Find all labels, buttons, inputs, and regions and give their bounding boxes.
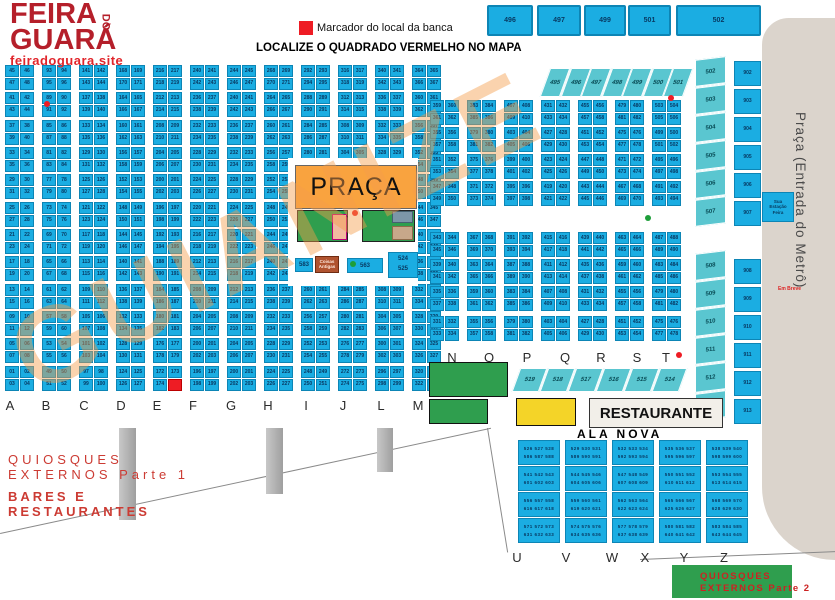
stall-cell: 16 bbox=[20, 297, 34, 309]
stall-cell: 248 bbox=[301, 366, 315, 378]
stall-cell: 395 bbox=[504, 181, 518, 193]
stall-cell: 101 bbox=[79, 338, 93, 350]
stall-cell: 354 bbox=[445, 167, 459, 179]
stall-cell: 449 bbox=[578, 167, 592, 179]
stall-cell: 459 bbox=[615, 259, 629, 271]
stall-cell: 317 bbox=[353, 65, 367, 77]
stall-cell: 502 bbox=[667, 140, 681, 152]
stall-cell: 470 bbox=[630, 194, 644, 206]
stall-cell: 40 bbox=[20, 133, 34, 145]
stall-cell: 131 bbox=[79, 160, 93, 172]
stall-cell: 226 bbox=[190, 187, 204, 199]
stall-cell: 366 bbox=[412, 78, 426, 90]
stall-cell-908: 908 bbox=[734, 259, 761, 284]
stall-cell: 431 bbox=[578, 286, 592, 298]
ala-nova-numbers: 613 614 615 bbox=[712, 479, 743, 486]
stall-cell: 296 bbox=[375, 366, 389, 378]
stall-cell: 249 bbox=[316, 366, 330, 378]
stall-cell: 364 bbox=[412, 65, 426, 77]
stall-cell-510: 510 bbox=[695, 306, 726, 337]
stall-cell: 343 bbox=[430, 232, 444, 244]
stall-cell: 400 bbox=[519, 154, 533, 166]
stall-cell: 96 bbox=[57, 78, 71, 90]
stall-cell: 205 bbox=[242, 338, 256, 350]
stall-cell: 451 bbox=[578, 127, 592, 139]
stall-cell: 113 bbox=[79, 256, 93, 268]
stall-cell: 291 bbox=[316, 105, 330, 117]
stall-cell: 306 bbox=[375, 324, 389, 336]
stall-cell: 167 bbox=[131, 105, 145, 117]
stall-cell: 475 bbox=[615, 127, 629, 139]
stall-cell: 498 bbox=[667, 167, 681, 179]
stall-cell: 124 bbox=[116, 366, 130, 378]
stall-cell: 236 bbox=[190, 92, 204, 104]
ala-nova-numbers: 625 626 627 bbox=[665, 505, 696, 512]
stall-cell: 144 bbox=[94, 78, 108, 90]
stall-cell: 259 bbox=[316, 324, 330, 336]
stall-cell: 504 bbox=[667, 100, 681, 112]
stall-cell: 103 bbox=[79, 351, 93, 363]
stall-cell: 453 bbox=[578, 140, 592, 152]
stall-cell: 452 bbox=[593, 127, 607, 139]
stall-cell: 315 bbox=[353, 105, 367, 117]
stall-cell: 276 bbox=[338, 338, 352, 350]
ala-nova-numbers: 631 632 633 bbox=[524, 531, 555, 538]
stall-cell: 333 bbox=[430, 329, 444, 341]
stall-cell: 205 bbox=[205, 311, 219, 323]
column-letter-J: J bbox=[340, 398, 347, 413]
stall-cell: 213 bbox=[168, 92, 182, 104]
quiosques1-line1: QUIOSQUES bbox=[8, 452, 123, 467]
stall-cell: 353 bbox=[430, 167, 444, 179]
stall-cell: 177 bbox=[168, 338, 182, 350]
stall-cell: 332 bbox=[375, 120, 389, 132]
stall-cell: 218 bbox=[190, 242, 204, 254]
stall-cell-504: 504 bbox=[695, 112, 726, 143]
ala-nova-block: 556 557 558616 617 618 bbox=[518, 492, 560, 517]
stall-cell: 374 bbox=[482, 194, 496, 206]
stall-cell: 239 bbox=[242, 133, 256, 145]
stall-cell: 367 bbox=[427, 78, 441, 90]
stall-cell: 36 bbox=[20, 160, 34, 172]
stall-cell: 262 bbox=[264, 133, 278, 145]
stall-cell: 359 bbox=[430, 100, 444, 112]
stall-cell: 03 bbox=[5, 379, 19, 391]
stall-cell-508: 508 bbox=[695, 250, 726, 281]
stall-cell: 447 bbox=[578, 154, 592, 166]
ala-nova-numbers: 565 566 567 bbox=[665, 497, 696, 504]
stall-cell: 265 bbox=[279, 92, 293, 104]
stall-cell: 38 bbox=[20, 120, 34, 132]
stall-cell: 366 bbox=[482, 272, 496, 284]
stall-cell: 433 bbox=[578, 299, 592, 311]
ala-nova-numbers: 592 593 594 bbox=[618, 453, 649, 460]
stall-cell: 125 bbox=[131, 366, 145, 378]
ala-nova-block: 544 545 546604 605 606 bbox=[565, 466, 607, 491]
stall-cell: 490 bbox=[667, 245, 681, 257]
stall-cell: 407 bbox=[504, 100, 518, 112]
logo-do: DO bbox=[99, 14, 111, 31]
ala-nova-numbers: 616 617 618 bbox=[524, 505, 555, 512]
stall-cell: 429 bbox=[541, 140, 555, 152]
stall-cell: 337 bbox=[390, 92, 404, 104]
stall-cell: 130 bbox=[116, 351, 130, 363]
ala-nova-block: 535 536 537595 596 597 bbox=[659, 440, 701, 465]
stall-cell: 124 bbox=[94, 215, 108, 227]
stall-cell: 143 bbox=[79, 78, 93, 90]
stall-cell: 51 bbox=[42, 379, 56, 391]
ala-nova-block: 553 554 555613 614 615 bbox=[706, 466, 748, 491]
ala-nova-numbers: 619 620 621 bbox=[571, 505, 602, 512]
stall-cell: 62 bbox=[57, 284, 71, 296]
stall-cell: 282 bbox=[338, 324, 352, 336]
site-link[interactable]: feiradoguara.site bbox=[10, 53, 123, 68]
stall-cell: 485 bbox=[652, 272, 666, 284]
stall-cell: 141 bbox=[131, 256, 145, 268]
stall-cell: 277 bbox=[353, 338, 367, 350]
stall-cell: 486 bbox=[667, 272, 681, 284]
quiosques1-line2: EXTERNOS Parte 1 bbox=[8, 467, 189, 482]
stall-cell: 48 bbox=[20, 78, 34, 90]
stall-cell: 496 bbox=[667, 154, 681, 166]
stall-cell: 109 bbox=[79, 284, 93, 296]
stall-cell-912: 912 bbox=[734, 371, 761, 396]
stall-cell: 423 bbox=[541, 154, 555, 166]
stall-524-label: 524 bbox=[398, 255, 408, 265]
stall-cell: 379 bbox=[467, 127, 481, 139]
stall-cell: 434 bbox=[593, 299, 607, 311]
stall-cell: 60 bbox=[57, 324, 71, 336]
ala-nova-numbers: 571 572 573 bbox=[524, 523, 555, 530]
column-letter-L: L bbox=[377, 398, 384, 413]
stall-cell: 201 bbox=[168, 174, 182, 186]
stall-cell: 458 bbox=[630, 299, 644, 311]
stall-cell: 240 bbox=[264, 256, 278, 268]
stall-cell: 232 bbox=[190, 120, 204, 132]
stall-cell: 219 bbox=[242, 269, 256, 281]
stall-cell: 406 bbox=[519, 140, 533, 152]
stall-cell: 164 bbox=[116, 92, 130, 104]
stall-cell: 169 bbox=[131, 65, 145, 77]
stall-cell: 217 bbox=[242, 256, 256, 268]
stall-cell: 293 bbox=[316, 65, 330, 77]
stall-cell: 341 bbox=[390, 65, 404, 77]
stall-cell: 484 bbox=[667, 259, 681, 271]
stall-cell: 347 bbox=[430, 181, 444, 193]
stall-cell: 206 bbox=[153, 160, 167, 172]
stall-cell-506: 506 bbox=[695, 168, 726, 199]
ala-nova-numbers: 559 560 561 bbox=[571, 497, 602, 504]
stall-cell: 318 bbox=[338, 78, 352, 90]
stall-cell: 138 bbox=[94, 92, 108, 104]
stall-cell: 349 bbox=[430, 194, 444, 206]
praca-label: PRAÇA bbox=[295, 165, 417, 209]
stall-cell: 99 bbox=[79, 379, 93, 391]
stall-cell: 362 bbox=[445, 113, 459, 125]
ala-nova-numbers: 622 623 624 bbox=[618, 505, 649, 512]
stall-cell: 322 bbox=[412, 379, 426, 391]
ala-nova-numbers: 604 605 606 bbox=[571, 479, 602, 486]
coisas-antigas-box: Coisas Antigas bbox=[315, 256, 339, 273]
stall-cell: 219 bbox=[205, 242, 219, 254]
stall-cell: 92 bbox=[57, 105, 71, 117]
stall-cell: 213 bbox=[242, 284, 256, 296]
stall-cell: 380 bbox=[482, 127, 496, 139]
stall-cell: 256 bbox=[301, 311, 315, 323]
stall-cell: 356 bbox=[445, 127, 459, 139]
stall-cell-507: 507 bbox=[695, 196, 726, 227]
stall-cell: 365 bbox=[427, 65, 441, 77]
stall-cell: 409 bbox=[541, 299, 555, 311]
stall-cell: 58 bbox=[57, 311, 71, 323]
stall-cell: 476 bbox=[630, 127, 644, 139]
stall-cell: 481 bbox=[652, 299, 666, 311]
stall-cell: 436 bbox=[593, 259, 607, 271]
stall-cell: 203 bbox=[205, 351, 219, 363]
stall-cell: 480 bbox=[667, 286, 681, 298]
stall-cell: 345 bbox=[430, 245, 444, 257]
bares-line2: RESTAURANTES bbox=[8, 504, 150, 519]
ala-nova-numbers: 607 608 609 bbox=[618, 479, 649, 486]
stall-cell: 166 bbox=[116, 105, 130, 117]
ala-nova-block: 541 542 543601 602 603 bbox=[518, 466, 560, 491]
stall-cell: 274 bbox=[338, 379, 352, 391]
stall-cell: 35 bbox=[5, 160, 19, 172]
stall-cell: 383 bbox=[467, 100, 481, 112]
stall-cell: 384 bbox=[482, 100, 496, 112]
stall-cell: 208 bbox=[190, 284, 204, 296]
stall-cell: 203 bbox=[168, 187, 182, 199]
stall-cell: 479 bbox=[652, 286, 666, 298]
stall-cell: 230 bbox=[264, 351, 278, 363]
stall-cell: 267 bbox=[279, 105, 293, 117]
stall-cell: 358 bbox=[445, 140, 459, 152]
stall-cell: 120 bbox=[94, 242, 108, 254]
stall-cell: 412 bbox=[556, 259, 570, 271]
stall-cell: 382 bbox=[482, 140, 496, 152]
stall-cell: 355 bbox=[467, 316, 481, 328]
stall-cell: 278 bbox=[338, 351, 352, 363]
stall-cell: 53 bbox=[42, 338, 56, 350]
stall-cell: 14 bbox=[20, 284, 34, 296]
stall-cell-907: 907 bbox=[734, 201, 761, 226]
stall-cell: 461 bbox=[615, 272, 629, 284]
stall-cell: 171 bbox=[131, 78, 145, 90]
stall-cell: 250 bbox=[301, 379, 315, 391]
stall-cell: 25 bbox=[5, 202, 19, 214]
stall-cell: 305 bbox=[390, 311, 404, 323]
stall-cell: 373 bbox=[467, 194, 481, 206]
stall-cell: 408 bbox=[556, 286, 570, 298]
stall-cell: 30 bbox=[20, 174, 34, 186]
stall-cell-909: 909 bbox=[734, 287, 761, 312]
stall-cell: 381 bbox=[504, 329, 518, 341]
stall-cell: 290 bbox=[301, 105, 315, 117]
stall-cell: 11 bbox=[5, 324, 19, 336]
stall-cell: 126 bbox=[94, 174, 108, 186]
stall-cell: 188 bbox=[153, 256, 167, 268]
column-letter-Y: Y bbox=[680, 550, 689, 565]
stall-cell: 179 bbox=[168, 351, 182, 363]
stall-cell: 153 bbox=[131, 174, 145, 186]
stall-cell: 442 bbox=[593, 245, 607, 257]
entrance-dot bbox=[350, 261, 356, 267]
stall-cell: 457 bbox=[578, 113, 592, 125]
stall-cell: 235 bbox=[205, 133, 219, 145]
stall-cell: 211 bbox=[242, 324, 256, 336]
ala-nova-numbers: 640 641 642 bbox=[665, 531, 696, 538]
ala-nova-numbers: 526 527 528 bbox=[524, 445, 555, 452]
red-marker-icon bbox=[299, 21, 313, 35]
stall-cell: 443 bbox=[578, 181, 592, 193]
column-letter-D: D bbox=[116, 398, 125, 413]
stall-cell: 398 bbox=[519, 194, 533, 206]
column-letter-M: M bbox=[413, 398, 424, 413]
stall-cell: 198 bbox=[153, 215, 167, 227]
stall-cell: 08 bbox=[20, 351, 34, 363]
ala-nova-numbers: 643 644 645 bbox=[712, 531, 743, 538]
stall-cell: 272 bbox=[338, 366, 352, 378]
stall-cell: 44 bbox=[20, 105, 34, 117]
stall-cell: 226 bbox=[227, 215, 241, 227]
stall-cell: 239 bbox=[205, 105, 219, 117]
ala-nova-numbers: 541 542 543 bbox=[524, 471, 555, 478]
stall-cell: 332 bbox=[445, 316, 459, 328]
stall-cell: 339 bbox=[430, 259, 444, 271]
stall-cell: 219 bbox=[168, 78, 182, 90]
stall-cell: 66 bbox=[57, 256, 71, 268]
stall-cell: 339 bbox=[390, 105, 404, 117]
stall-cell: 100 bbox=[94, 379, 108, 391]
stall-cell: 214 bbox=[153, 105, 167, 117]
stall-cell: 268 bbox=[264, 65, 278, 77]
stall-cell: 238 bbox=[227, 133, 241, 145]
stall-box-496: 496 bbox=[487, 5, 533, 36]
stall-cell: 128 bbox=[94, 187, 108, 199]
stall-cell: 222 bbox=[227, 242, 241, 254]
stall-cell: 197 bbox=[205, 366, 219, 378]
stall-cell: 355 bbox=[430, 127, 444, 139]
stall-cell: 232 bbox=[227, 147, 241, 159]
stall-cell: 254 bbox=[264, 187, 278, 199]
stall-cell: 214 bbox=[190, 269, 204, 281]
stall-cell: 252 bbox=[301, 338, 315, 350]
column-letter-C: C bbox=[79, 398, 88, 413]
stall-cell: 119 bbox=[79, 242, 93, 254]
stall-cell: 220 bbox=[227, 229, 241, 241]
stall-cell: 473 bbox=[615, 167, 629, 179]
stall-cell: 90 bbox=[57, 92, 71, 104]
stall-cell: 458 bbox=[593, 113, 607, 125]
entrance-dot bbox=[352, 210, 358, 216]
stall-cell: 152 bbox=[116, 174, 130, 186]
stall-cell: 471 bbox=[615, 154, 629, 166]
stall-cell: 132 bbox=[94, 160, 108, 172]
stall-cell: 409 bbox=[504, 113, 518, 125]
stall-cell: 448 bbox=[593, 154, 607, 166]
stall-cell: 280 bbox=[338, 311, 352, 323]
stall-cell: 207 bbox=[242, 351, 256, 363]
stall-cell: 244 bbox=[227, 65, 241, 77]
stall-cell: 441 bbox=[578, 245, 592, 257]
stall-cell: 43 bbox=[5, 105, 19, 117]
stall-cell: 122 bbox=[94, 202, 108, 214]
stall-cell: 435 bbox=[578, 259, 592, 271]
logo: FEIRADO GUARÁ feiradoguara.site bbox=[10, 2, 123, 68]
stall-cell: 362 bbox=[412, 105, 426, 117]
stall-cell: 381 bbox=[467, 140, 481, 152]
stall-cell: 105 bbox=[79, 311, 93, 323]
stall-cell: 392 bbox=[519, 232, 533, 244]
stall-cell: 477 bbox=[652, 329, 666, 341]
stall-cell: 210 bbox=[227, 324, 241, 336]
stall-cell: 288 bbox=[301, 92, 315, 104]
ala-nova-numbers: 568 569 570 bbox=[712, 497, 743, 504]
stall-cell: 454 bbox=[593, 140, 607, 152]
stall-cell: 233 bbox=[242, 147, 256, 159]
stall-cell: 154 bbox=[116, 187, 130, 199]
stall-cell: 229 bbox=[205, 147, 219, 159]
stall-cell: 75 bbox=[42, 215, 56, 227]
stall-cell: 54 bbox=[57, 338, 71, 350]
stall-cell: 21 bbox=[5, 229, 19, 241]
stall-cell: 64 bbox=[57, 297, 71, 309]
stall-cell: 482 bbox=[630, 113, 644, 125]
stall-cell: 499 bbox=[652, 127, 666, 139]
boundary-line bbox=[487, 428, 508, 553]
stall-cell: 214 bbox=[227, 297, 241, 309]
stall-cell: 233 bbox=[205, 120, 219, 132]
stall-cell: 472 bbox=[630, 154, 644, 166]
stall-cell: 453 bbox=[615, 329, 629, 341]
stall-cell: 403 bbox=[541, 316, 555, 328]
stall-cell: 444 bbox=[593, 181, 607, 193]
map-heading: LOCALIZE O QUADRADO VERMELHO NO MAPA bbox=[256, 42, 522, 54]
stall-cell: 307 bbox=[390, 324, 404, 336]
stall-cell: 465 bbox=[615, 245, 629, 257]
stall-cell: 224 bbox=[264, 366, 278, 378]
stall-cell: 469 bbox=[615, 194, 629, 206]
stall-cell: 204 bbox=[153, 147, 167, 159]
stall-cell: 67 bbox=[42, 269, 56, 281]
ala-nova-numbers: 583 584 585 bbox=[712, 523, 743, 530]
stall-cell: 72 bbox=[57, 242, 71, 254]
stall-cell: 209 bbox=[205, 284, 219, 296]
stall-cell: 309 bbox=[353, 120, 367, 132]
stall-cell: 262 bbox=[301, 297, 315, 309]
stall-cell: 59 bbox=[42, 324, 56, 336]
stall-cell: 228 bbox=[264, 338, 278, 350]
stall-cell: 32 bbox=[20, 187, 34, 199]
stall-cell: 340 bbox=[445, 259, 459, 271]
stall-cell: 356 bbox=[482, 316, 496, 328]
stall-cell: 404 bbox=[556, 316, 570, 328]
stall-cell: 71 bbox=[42, 242, 56, 254]
stall-cell: 140 bbox=[116, 256, 130, 268]
stall-cell: 23 bbox=[5, 242, 19, 254]
stall-cell: 204 bbox=[190, 311, 204, 323]
stall-cell: 414 bbox=[556, 272, 570, 284]
stall-cell: 405 bbox=[504, 140, 518, 152]
stall-cell: 406 bbox=[556, 329, 570, 341]
stall-cell: 257 bbox=[316, 311, 330, 323]
stall-cell: 17 bbox=[5, 256, 19, 268]
stall-cell: 399 bbox=[504, 154, 518, 166]
stall-cell: 356 bbox=[412, 120, 426, 132]
stall-cell: 463 bbox=[615, 232, 629, 244]
ala-nova-numbers: 577 578 579 bbox=[618, 523, 649, 530]
ala-nova-numbers: 553 554 555 bbox=[712, 471, 743, 478]
